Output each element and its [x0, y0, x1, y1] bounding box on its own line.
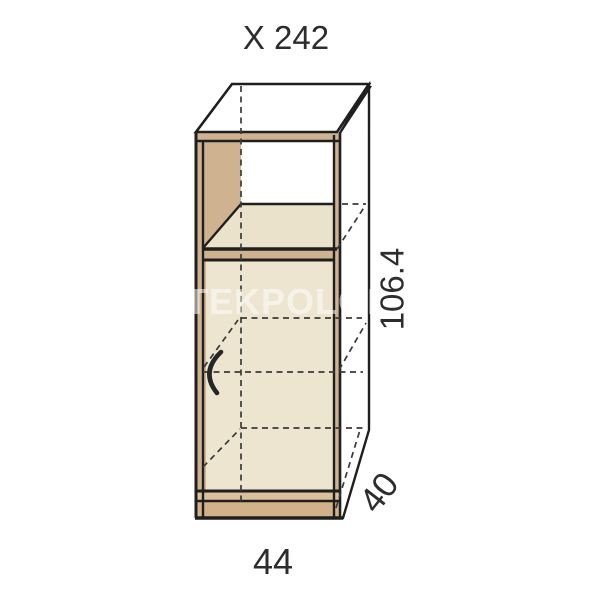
- open-niche-back-opening: [241, 141, 334, 204]
- product-title: X 242: [243, 19, 329, 56]
- hidden-shelf-right-depth-edge: [339, 323, 366, 370]
- watermark: TEKPOLON: [186, 281, 394, 322]
- plinth-lower-strip: [197, 501, 339, 517]
- furniture-diagram-page: X 242: [0, 0, 600, 600]
- depth-dimension-label: 40: [352, 465, 407, 520]
- top-panel-edge-double-line: [342, 86, 371, 130]
- height-dimension-label: 106.4: [374, 248, 411, 331]
- cabinet-technical-drawing: X 242: [0, 0, 600, 600]
- width-dimension-label: 44: [253, 541, 293, 582]
- cabinet-top-face: [196, 84, 369, 132]
